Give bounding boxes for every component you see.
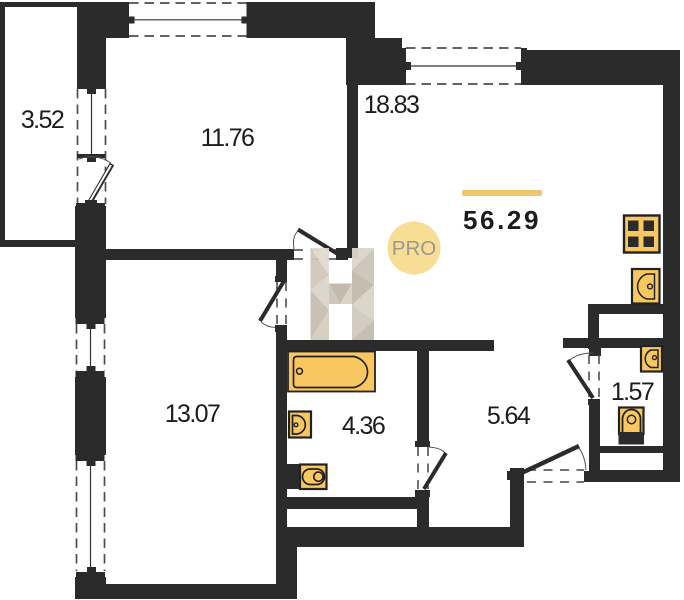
svg-text:18.83: 18.83 bbox=[364, 91, 419, 119]
svg-text:4.36: 4.36 bbox=[342, 412, 385, 440]
svg-text:56.29: 56.29 bbox=[463, 205, 541, 235]
svg-text:3.52: 3.52 bbox=[21, 106, 64, 134]
svg-text:1.57: 1.57 bbox=[611, 378, 654, 406]
svg-text:13.07: 13.07 bbox=[165, 400, 220, 428]
svg-text:11.76: 11.76 bbox=[201, 124, 254, 152]
svg-text:PRO: PRO bbox=[392, 237, 436, 260]
svg-text:5.64: 5.64 bbox=[487, 402, 531, 430]
